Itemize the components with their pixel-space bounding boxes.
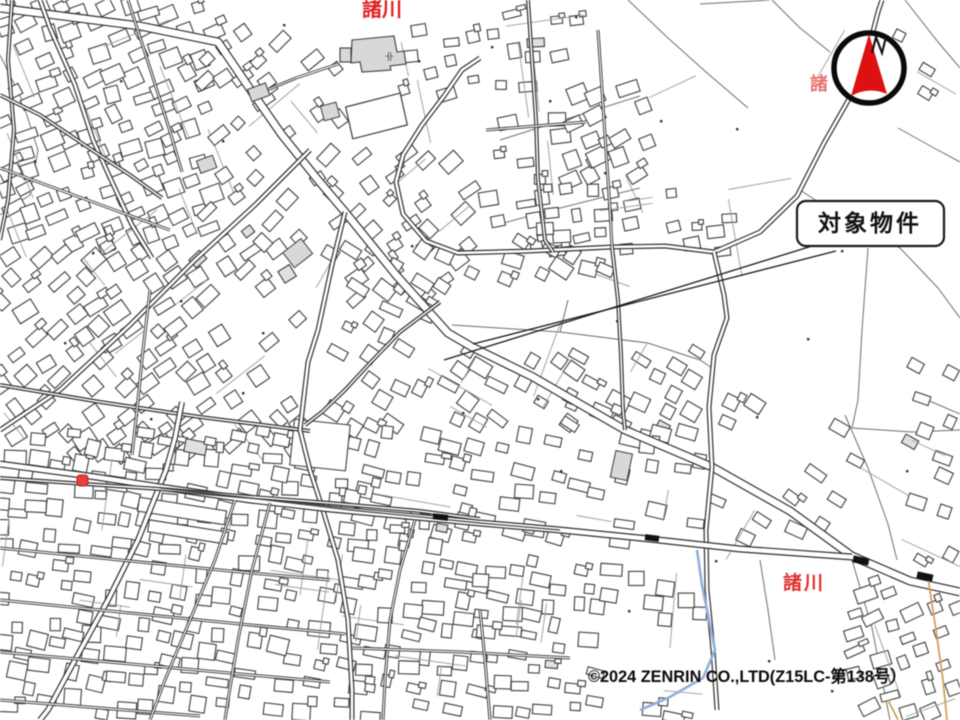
svg-text:諸川: 諸川: [783, 571, 825, 594]
svg-text:諸川: 諸川: [362, 0, 402, 21]
svg-text:©2024 ZENRIN CO.,LTD(Z15LC-第13: ©2024 ZENRIN CO.,LTD(Z15LC-第138号）: [588, 667, 906, 686]
svg-text:卝: 卝: [385, 52, 394, 62]
svg-text:諸: 諸: [810, 73, 828, 94]
svg-text:対象物件: 対象物件: [818, 210, 922, 236]
